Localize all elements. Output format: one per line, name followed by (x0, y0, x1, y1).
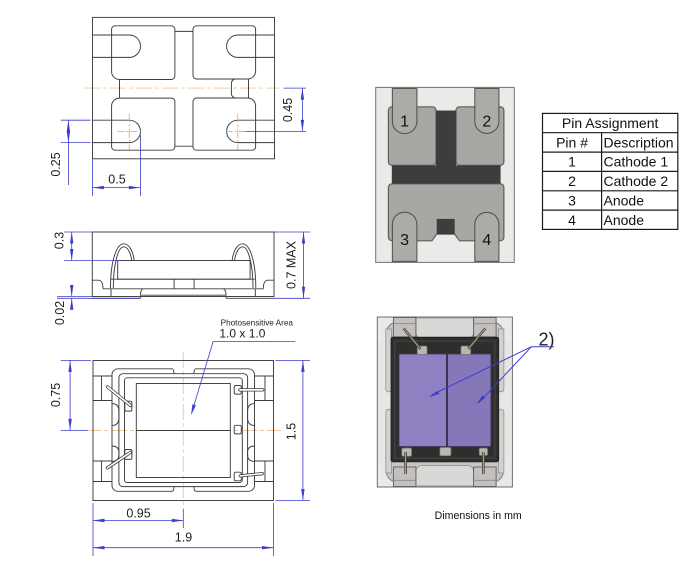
svg-text:0.7 MAX: 0.7 MAX (285, 240, 299, 289)
svg-text:Pin #: Pin # (556, 134, 588, 150)
svg-text:3: 3 (568, 192, 576, 208)
svg-text:Dimensions in mm: Dimensions in mm (435, 510, 522, 522)
svg-text:1.9: 1.9 (175, 531, 192, 545)
svg-text:0.95: 0.95 (126, 507, 150, 521)
svg-text:Cathode 1: Cathode 1 (604, 154, 669, 170)
svg-text:1.0 x 1.0: 1.0 x 1.0 (219, 327, 265, 341)
svg-text:Pin Assignment: Pin Assignment (562, 115, 659, 131)
svg-text:1.5: 1.5 (285, 423, 299, 440)
svg-text:4: 4 (568, 212, 576, 228)
svg-text:Description: Description (604, 134, 674, 150)
svg-text:1: 1 (568, 154, 576, 170)
svg-text:2: 2 (568, 173, 576, 189)
svg-text:4: 4 (482, 232, 491, 249)
svg-text:0.02: 0.02 (53, 301, 67, 325)
svg-text:0.45: 0.45 (281, 98, 295, 122)
svg-text:0.5: 0.5 (108, 173, 125, 187)
svg-text:0.75: 0.75 (49, 383, 63, 407)
svg-text:Anode: Anode (604, 192, 645, 208)
svg-text:Cathode 2: Cathode 2 (604, 173, 669, 189)
svg-text:0.25: 0.25 (49, 152, 63, 176)
svg-text:0.3: 0.3 (53, 232, 67, 249)
svg-text:3: 3 (400, 232, 409, 249)
svg-text:1: 1 (400, 113, 409, 130)
svg-text:2: 2 (482, 113, 491, 130)
svg-text:Anode: Anode (604, 212, 645, 228)
